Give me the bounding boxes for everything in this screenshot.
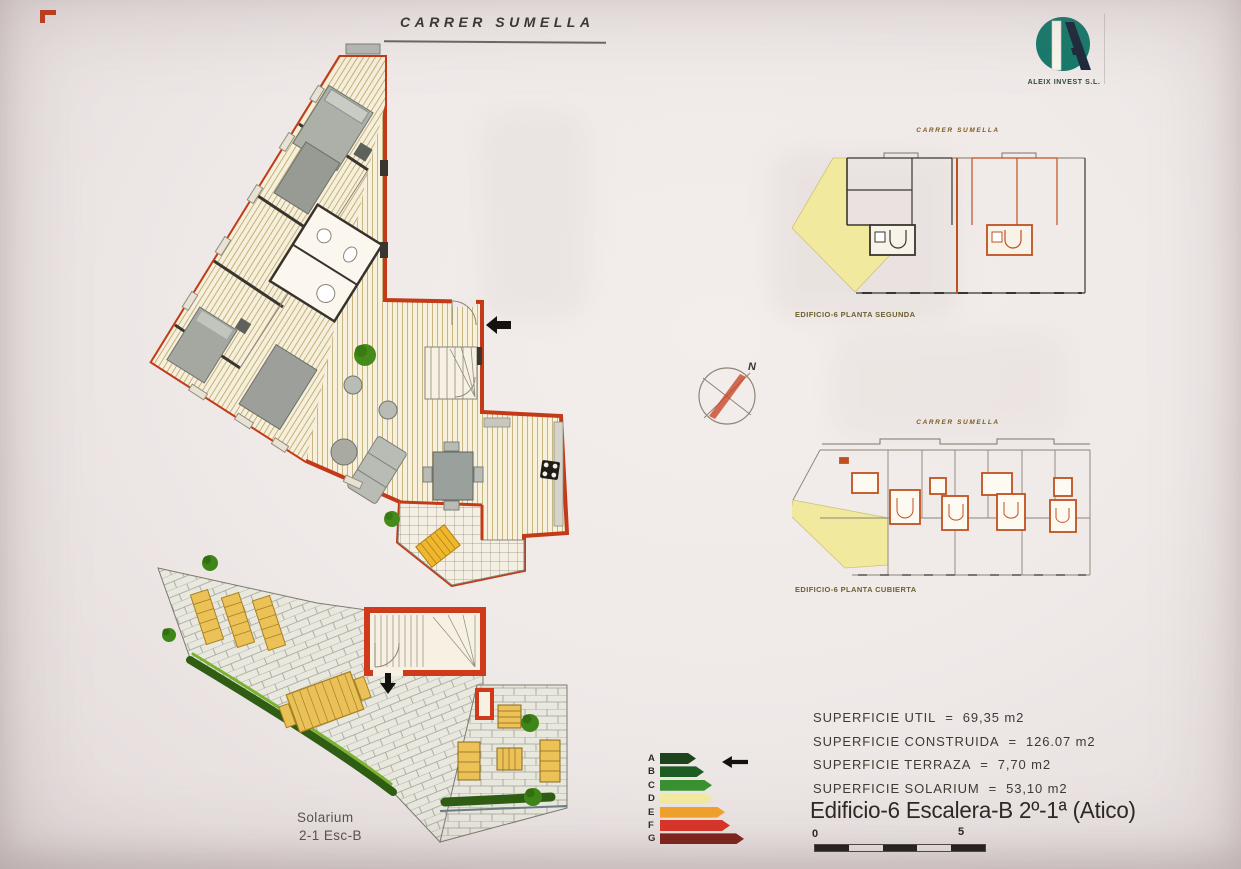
energy-letter: D bbox=[648, 793, 660, 804]
energy-rating-chart: A B C D E F G bbox=[648, 753, 808, 847]
staircase bbox=[425, 347, 482, 399]
street-label-plan-segunda: CARRER SUMELLA bbox=[903, 127, 1013, 134]
caption-plan-cubierta: EDIFICIO-6 PLANTA CUBIERTA bbox=[795, 585, 917, 594]
energy-letter: G bbox=[648, 833, 660, 844]
equals-sign: = bbox=[945, 710, 954, 725]
plant bbox=[354, 344, 376, 366]
terrace-plant bbox=[384, 511, 400, 527]
energy-bar-icon bbox=[660, 780, 712, 791]
bathroom-unit2 bbox=[987, 225, 1032, 255]
solarium-sublabel: 2-1 Esc-B bbox=[299, 828, 362, 843]
energy-row-g: G bbox=[648, 833, 808, 844]
top-lintel bbox=[346, 44, 380, 54]
cooktop-icon bbox=[540, 460, 560, 480]
equals-sign: = bbox=[1008, 734, 1017, 749]
scan-crease bbox=[1104, 14, 1105, 84]
solarium-plan bbox=[145, 555, 625, 860]
surface-label: SUPERFICIE SOLARIUM bbox=[813, 781, 980, 796]
surface-row: SUPERFICIE TERRAZA = 7,70 m2 bbox=[813, 757, 1096, 772]
energy-letter: E bbox=[648, 807, 660, 818]
energy-letter: F bbox=[648, 820, 660, 831]
energy-letter: A bbox=[648, 753, 660, 764]
energy-row-b: B bbox=[648, 766, 808, 777]
energy-bar-icon bbox=[660, 766, 704, 777]
surface-value: 126.07 m2 bbox=[1026, 734, 1096, 749]
entry-arrow-icon bbox=[486, 316, 511, 334]
armchair bbox=[344, 376, 362, 394]
facade-top-line bbox=[848, 153, 1085, 158]
equals-sign: = bbox=[989, 781, 998, 796]
street-label-main: CARRER SUMELLA bbox=[400, 14, 594, 30]
rooftop-fixture-details bbox=[897, 498, 1069, 522]
plan-planta-cubierta bbox=[792, 428, 1107, 588]
compass-needle-icon bbox=[709, 374, 746, 419]
scale-bar bbox=[814, 844, 986, 852]
energy-row-e: E bbox=[648, 807, 808, 818]
scale-start-label: 0 bbox=[812, 828, 818, 840]
surface-row: SUPERFICIE CONSTRUIDA = 126.07 m2 bbox=[813, 734, 1096, 749]
surface-areas-block: SUPERFICIE UTIL = 69,35 m2 SUPERFICIE CO… bbox=[813, 710, 1096, 804]
surface-value: 53,10 m2 bbox=[1006, 781, 1067, 796]
chimney-vent bbox=[477, 690, 492, 718]
surface-label: SUPERFICIE TERRAZA bbox=[813, 757, 971, 772]
energy-bar-icon bbox=[660, 807, 725, 818]
energy-row-f: F bbox=[648, 820, 808, 831]
compass-north-label: N bbox=[748, 361, 757, 373]
scale-end-label: 5 bbox=[958, 826, 964, 838]
energy-bar-icon bbox=[660, 753, 696, 764]
surface-row: SUPERFICIE SOLARIUM = 53,10 m2 bbox=[813, 781, 1096, 796]
corner-mark bbox=[40, 10, 45, 23]
highlight-solarium-area bbox=[792, 500, 888, 568]
surface-label: SUPERFICIE UTIL bbox=[813, 710, 936, 725]
energy-row-c: C bbox=[648, 780, 808, 791]
solarium-label: Solarium bbox=[297, 810, 353, 825]
energy-letter: C bbox=[648, 780, 660, 791]
energy-bar-icon bbox=[660, 820, 730, 831]
energy-bar-icon bbox=[660, 833, 744, 844]
compass-rose: N bbox=[691, 356, 765, 434]
wall-pier bbox=[380, 242, 388, 258]
surface-value: 69,35 m2 bbox=[963, 710, 1024, 725]
energy-letter: B bbox=[648, 766, 660, 777]
plan-planta-segunda bbox=[792, 140, 1102, 308]
wall-pier bbox=[380, 160, 388, 176]
scanned-plan-sheet: CARRER SUMELLA ALEIX INVEST S.L. bbox=[0, 0, 1241, 869]
caption-plan-segunda: EDIFICIO-6 PLANTA SEGUNDA bbox=[795, 310, 915, 319]
logo-a-bar-icon bbox=[1071, 48, 1085, 55]
equals-sign: = bbox=[980, 757, 989, 772]
logo-company-name: ALEIX INVEST S.L. bbox=[1028, 79, 1101, 86]
facade-top-line bbox=[822, 439, 1090, 444]
logo-l-bar-icon bbox=[1052, 21, 1061, 70]
energy-row-d: D bbox=[648, 793, 808, 804]
street-label-plan-cubierta: CARRER SUMELLA bbox=[903, 419, 1013, 426]
coffee-table bbox=[331, 439, 357, 465]
company-logo: ALEIX INVEST S.L. bbox=[1015, 10, 1115, 90]
sheet-title: Edificio-6 Escalera-B 2º-1ª (Atico) bbox=[810, 797, 1136, 824]
surface-value: 7,70 m2 bbox=[998, 757, 1051, 772]
main-apartment-plan bbox=[130, 30, 630, 590]
energy-bar-icon bbox=[660, 793, 713, 804]
surface-label: SUPERFICIE CONSTRUIDA bbox=[813, 734, 999, 749]
bathroom-unit1 bbox=[870, 225, 915, 255]
armchair bbox=[379, 401, 397, 419]
surface-row: SUPERFICIE UTIL = 69,35 m2 bbox=[813, 710, 1096, 725]
